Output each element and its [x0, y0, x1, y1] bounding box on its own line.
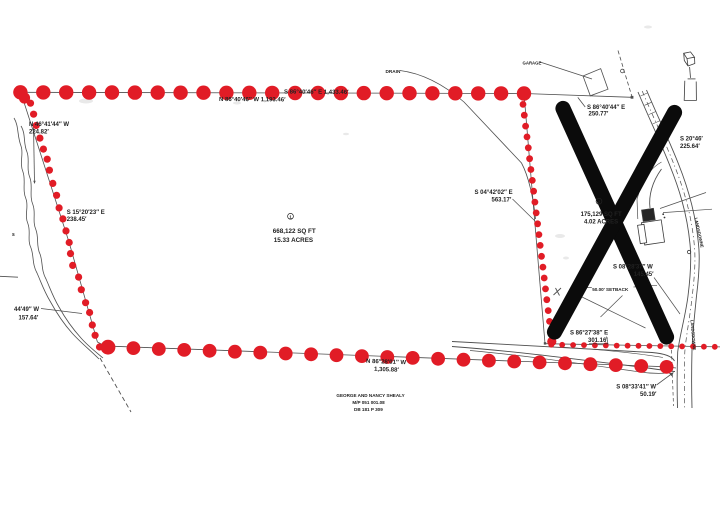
svg-text:S 08°28′37″ W: S 08°28′37″ W — [613, 265, 653, 271]
svg-text:145.45′: 145.45′ — [634, 272, 654, 278]
svg-text:250.77′: 250.77′ — [589, 112, 609, 118]
svg-text:563.17′: 563.17′ — [492, 198, 512, 204]
svg-text:S 20°46′: S 20°46′ — [680, 137, 703, 143]
svg-text:S 08°33′41″ W: S 08°33′41″ W — [616, 385, 656, 391]
svg-text:GARAGE: GARAGE — [523, 60, 542, 65]
svg-text:S 86°27′38″ E: S 86°27′38″ E — [570, 331, 608, 337]
svg-text:50.00′ SETBACK: 50.00′ SETBACK — [592, 287, 629, 292]
svg-text:s: s — [12, 232, 15, 238]
svg-text:44′49″ W: 44′49″ W — [14, 307, 39, 313]
svg-text:301.16′: 301.16′ — [588, 338, 608, 344]
svg-text:M/P 051 001.08: M/P 051 001.08 — [352, 400, 385, 405]
svg-text:GEORGE AND NANCY SHEALY: GEORGE AND NANCY SHEALY — [336, 393, 404, 398]
svg-text:N 46°41′44″ W: N 46°41′44″ W — [29, 122, 69, 128]
svg-text:225.64′: 225.64′ — [680, 144, 700, 150]
svg-text:15.33 ACRES: 15.33 ACRES — [274, 237, 313, 244]
svg-text:N 86°40′46″ W 1,193.46′: N 86°40′46″ W 1,193.46′ — [219, 97, 286, 103]
svg-text:4.02 ACRES: 4.02 ACRES — [584, 219, 618, 225]
svg-text:S 04°42′02″ E: S 04°42′02″ E — [475, 190, 513, 196]
svg-text:1,305.88′: 1,305.88′ — [374, 367, 400, 374]
svg-text:157.64′: 157.64′ — [19, 315, 39, 321]
svg-text:S 86°40′44″ E: S 86°40′44″ E — [587, 105, 625, 111]
svg-text:50.19′: 50.19′ — [640, 392, 657, 398]
svg-text:175,129 SQ FT: 175,129 SQ FT — [581, 212, 622, 218]
svg-text:668,122 SQ FT: 668,122 SQ FT — [273, 228, 316, 235]
svg-text:DRAIN: DRAIN — [386, 69, 401, 74]
svg-text:DB 181 P 309: DB 181 P 309 — [354, 407, 383, 412]
svg-text:S 15°20′23″ E: S 15°20′23″ E — [67, 210, 105, 216]
svg-text:S 86°40′46″ E 1,433.46′: S 86°40′46″ E 1,433.46′ — [284, 90, 349, 96]
svg-text:238.45′: 238.45′ — [67, 217, 87, 223]
svg-text:224.82′: 224.82′ — [29, 130, 49, 136]
